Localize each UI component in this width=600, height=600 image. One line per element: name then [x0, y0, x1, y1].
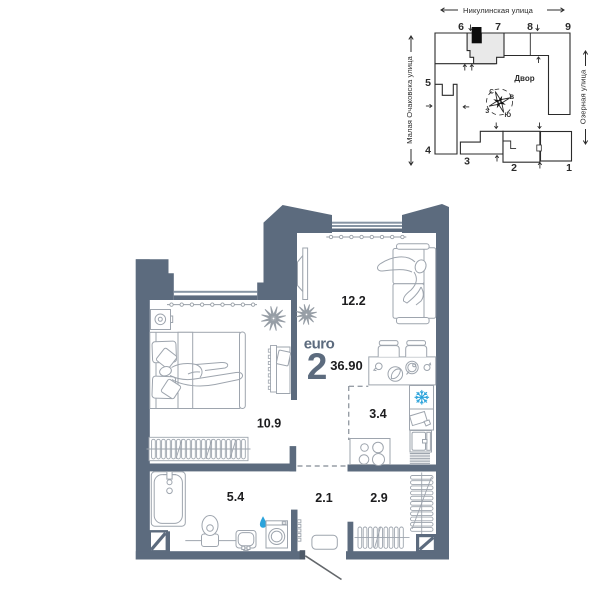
svg-text:Никулинская улица: Никулинская улица: [463, 6, 534, 15]
svg-text:5.4: 5.4: [227, 490, 244, 504]
svg-text:3.4: 3.4: [369, 407, 386, 421]
svg-text:З: З: [485, 108, 489, 115]
svg-text:Двор: Двор: [514, 74, 534, 83]
svg-text:В: В: [509, 94, 514, 101]
svg-text:2: 2: [511, 162, 517, 174]
svg-text:4: 4: [425, 145, 431, 157]
svg-text:3: 3: [464, 156, 470, 168]
svg-text:2.9: 2.9: [370, 491, 387, 505]
svg-text:С: С: [489, 89, 494, 96]
svg-text:Малая Очаковска улица: Малая Очаковска улица: [405, 55, 414, 143]
svg-text:6: 6: [458, 21, 464, 33]
svg-text:10.9: 10.9: [257, 417, 281, 431]
svg-text:8: 8: [527, 21, 533, 33]
svg-text:9: 9: [565, 21, 571, 33]
svg-text:2: 2: [307, 346, 328, 387]
svg-text:36.90: 36.90: [330, 358, 363, 373]
svg-text:1: 1: [566, 162, 572, 174]
svg-text:Ю: Ю: [505, 112, 512, 119]
svg-text:7: 7: [495, 21, 501, 33]
svg-text:Озерная улица: Озерная улица: [579, 69, 588, 124]
svg-text:2.1: 2.1: [315, 491, 332, 505]
svg-text:5: 5: [425, 77, 431, 89]
svg-text:12.2: 12.2: [341, 294, 365, 308]
